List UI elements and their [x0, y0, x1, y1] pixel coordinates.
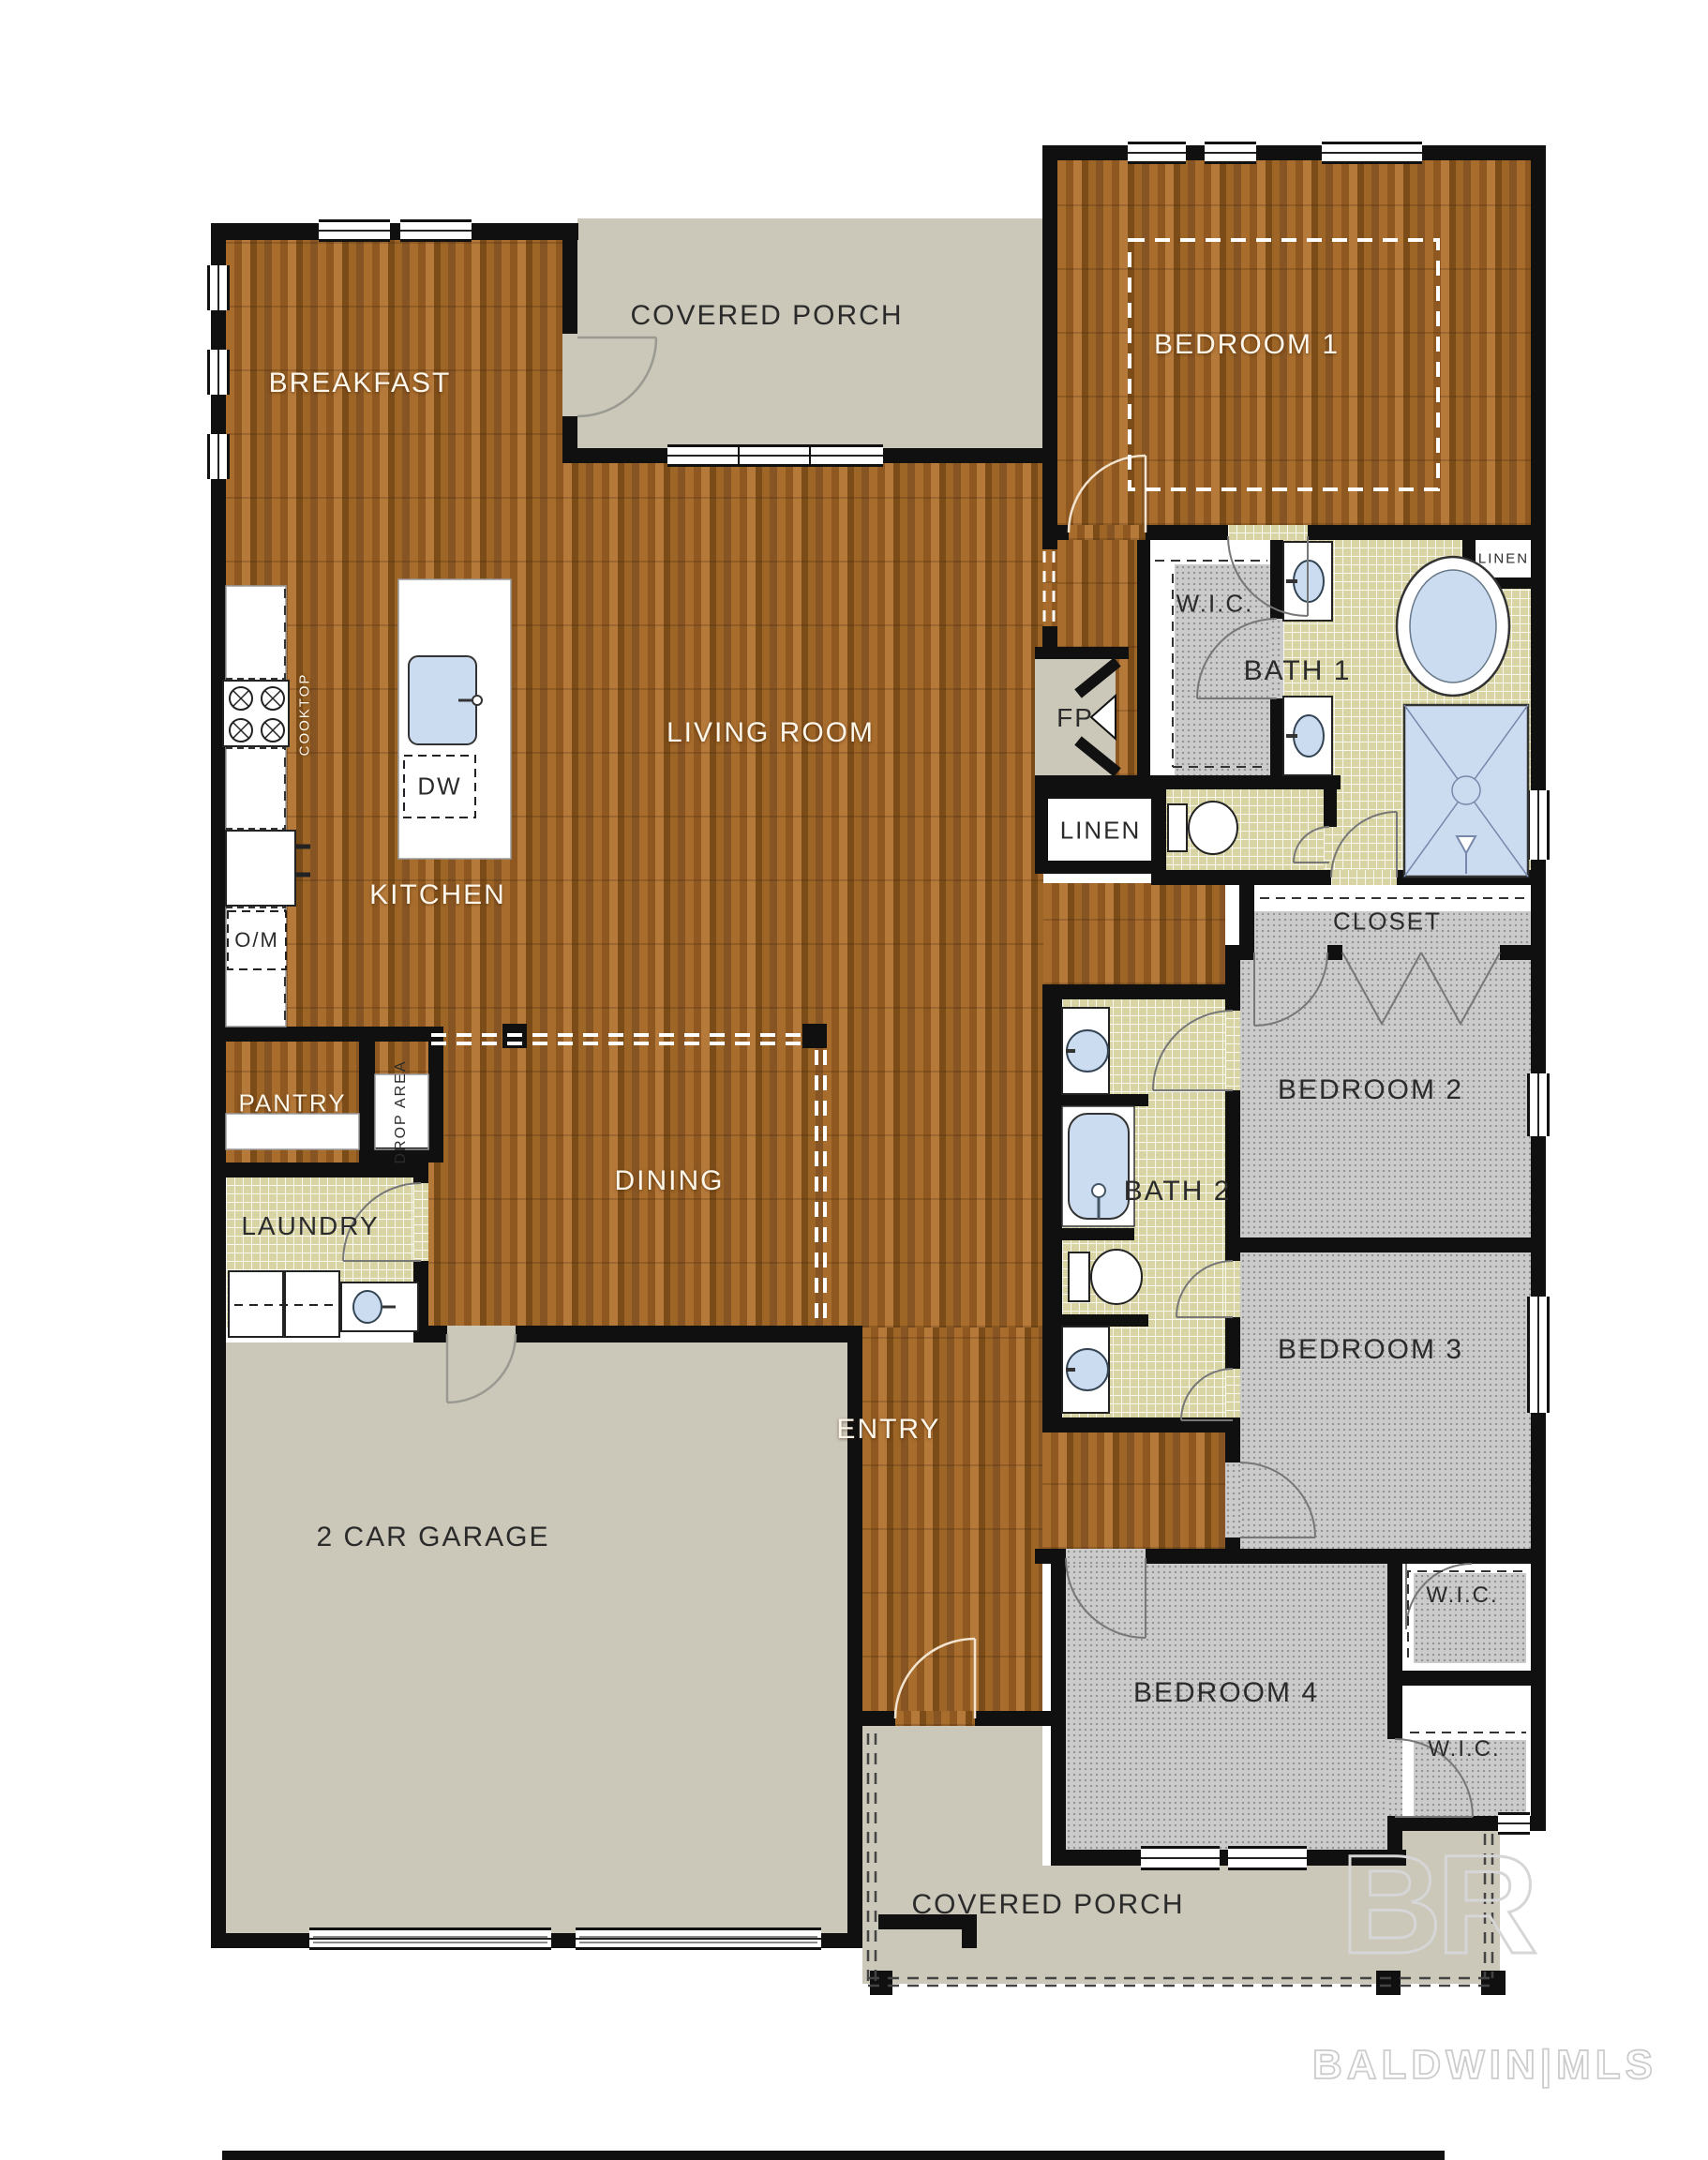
toilet1-tank	[1168, 804, 1187, 851]
dining-label: DINING	[615, 1165, 725, 1197]
door-bath2-top-arc	[1153, 1011, 1233, 1090]
door-toilet-arc	[1294, 827, 1329, 862]
dining-ceiling-dash-v	[817, 1050, 825, 1324]
floor-plan: BREAKFASTCOVERED PORCHBEDROOM 1LIVING RO…	[0, 0, 1708, 2160]
laundry-label: LAUNDRY	[241, 1211, 379, 1241]
garage-door-lines	[313, 1937, 817, 1942]
fp-label: FP	[1056, 703, 1094, 733]
watermark-text: BALDWIN|MLS	[1312, 2042, 1657, 2089]
door-bedroom2-arc	[1254, 952, 1327, 1026]
bedroom2-label: BEDROOM 2	[1278, 1074, 1463, 1106]
door-bedroom3-arc	[1240, 1462, 1315, 1537]
toilet2-tank	[1069, 1252, 1089, 1301]
garage-label: 2 CAR GARAGE	[316, 1522, 549, 1553]
bedroom4-label: BEDROOM 4	[1133, 1677, 1319, 1709]
bedroom1-label: BEDROOM 1	[1154, 329, 1340, 361]
fp-notch	[1091, 696, 1116, 739]
kitchen-label: KITCHEN	[369, 879, 506, 911]
entry-label: ENTRY	[836, 1414, 940, 1446]
garden-tub-inner	[1410, 570, 1496, 682]
fp-chevron-bottom	[1078, 741, 1117, 772]
wic3-label: W.I.C.	[1428, 1736, 1500, 1762]
drop-area-label: DROP AREA	[393, 1059, 410, 1163]
laundry-sink	[353, 1291, 382, 1323]
linen1-label: LINEN	[1060, 817, 1142, 846]
wic2-label: W.I.C.	[1426, 1582, 1498, 1609]
island-faucet	[472, 696, 482, 705]
bath2-tub-drain	[1092, 1184, 1105, 1197]
bath2-label: BATH 2	[1124, 1176, 1232, 1207]
toilet1-bowl	[1189, 802, 1237, 854]
pantry-label: PANTRY	[238, 1089, 346, 1118]
door-breakfast-arc	[577, 337, 656, 416]
fridge-handles	[295, 847, 310, 875]
bath1-sink-2	[1294, 715, 1324, 757]
door-front-arc	[895, 1639, 975, 1718]
cooktop-label: COOKTOP	[297, 673, 313, 757]
porch-edge-left	[868, 1733, 876, 1982]
shower-drain	[1452, 776, 1480, 804]
dining-ceiling-dash-h	[431, 1035, 810, 1043]
bedroom3-label: BEDROOM 3	[1278, 1334, 1463, 1366]
door-bath1-hall-arc	[1331, 812, 1397, 877]
watermark-logo: BR	[1341, 1823, 1533, 1986]
fp-chevron-top	[1078, 662, 1117, 694]
cased-opening-dash	[1044, 551, 1054, 624]
door-garage-arc	[447, 1334, 516, 1402]
covered-porch-top-label: COVERED PORCH	[630, 300, 903, 332]
toilet2-bowl	[1091, 1250, 1142, 1304]
wic1-label: W.I.C.	[1176, 590, 1254, 619]
breakfast-label: BREAKFAST	[269, 367, 452, 399]
porch-window-mullions	[739, 444, 810, 467]
living-room-label: LIVING ROOM	[667, 717, 875, 749]
dw-label: DW	[417, 772, 461, 802]
closet-label: CLOSET	[1333, 907, 1442, 937]
linen2-label: LINEN	[1478, 551, 1529, 567]
door-bedroom1-arc	[1069, 456, 1146, 532]
pantry-shelf-outline	[226, 1114, 359, 1149]
door-bath2-mid-arc	[1176, 1261, 1233, 1317]
om-label: O/M	[234, 928, 279, 952]
bath1-label: BATH 1	[1244, 655, 1352, 687]
bed1-dashed-rect	[1130, 240, 1438, 489]
door-bedroom4-arc	[1066, 1558, 1146, 1638]
fridge	[226, 831, 295, 906]
closet-bifold-doors	[1342, 952, 1500, 1024]
door-bath2-bot-arc	[1181, 1369, 1233, 1420]
covered-porch-bottom-label: COVERED PORCH	[911, 1889, 1184, 1921]
